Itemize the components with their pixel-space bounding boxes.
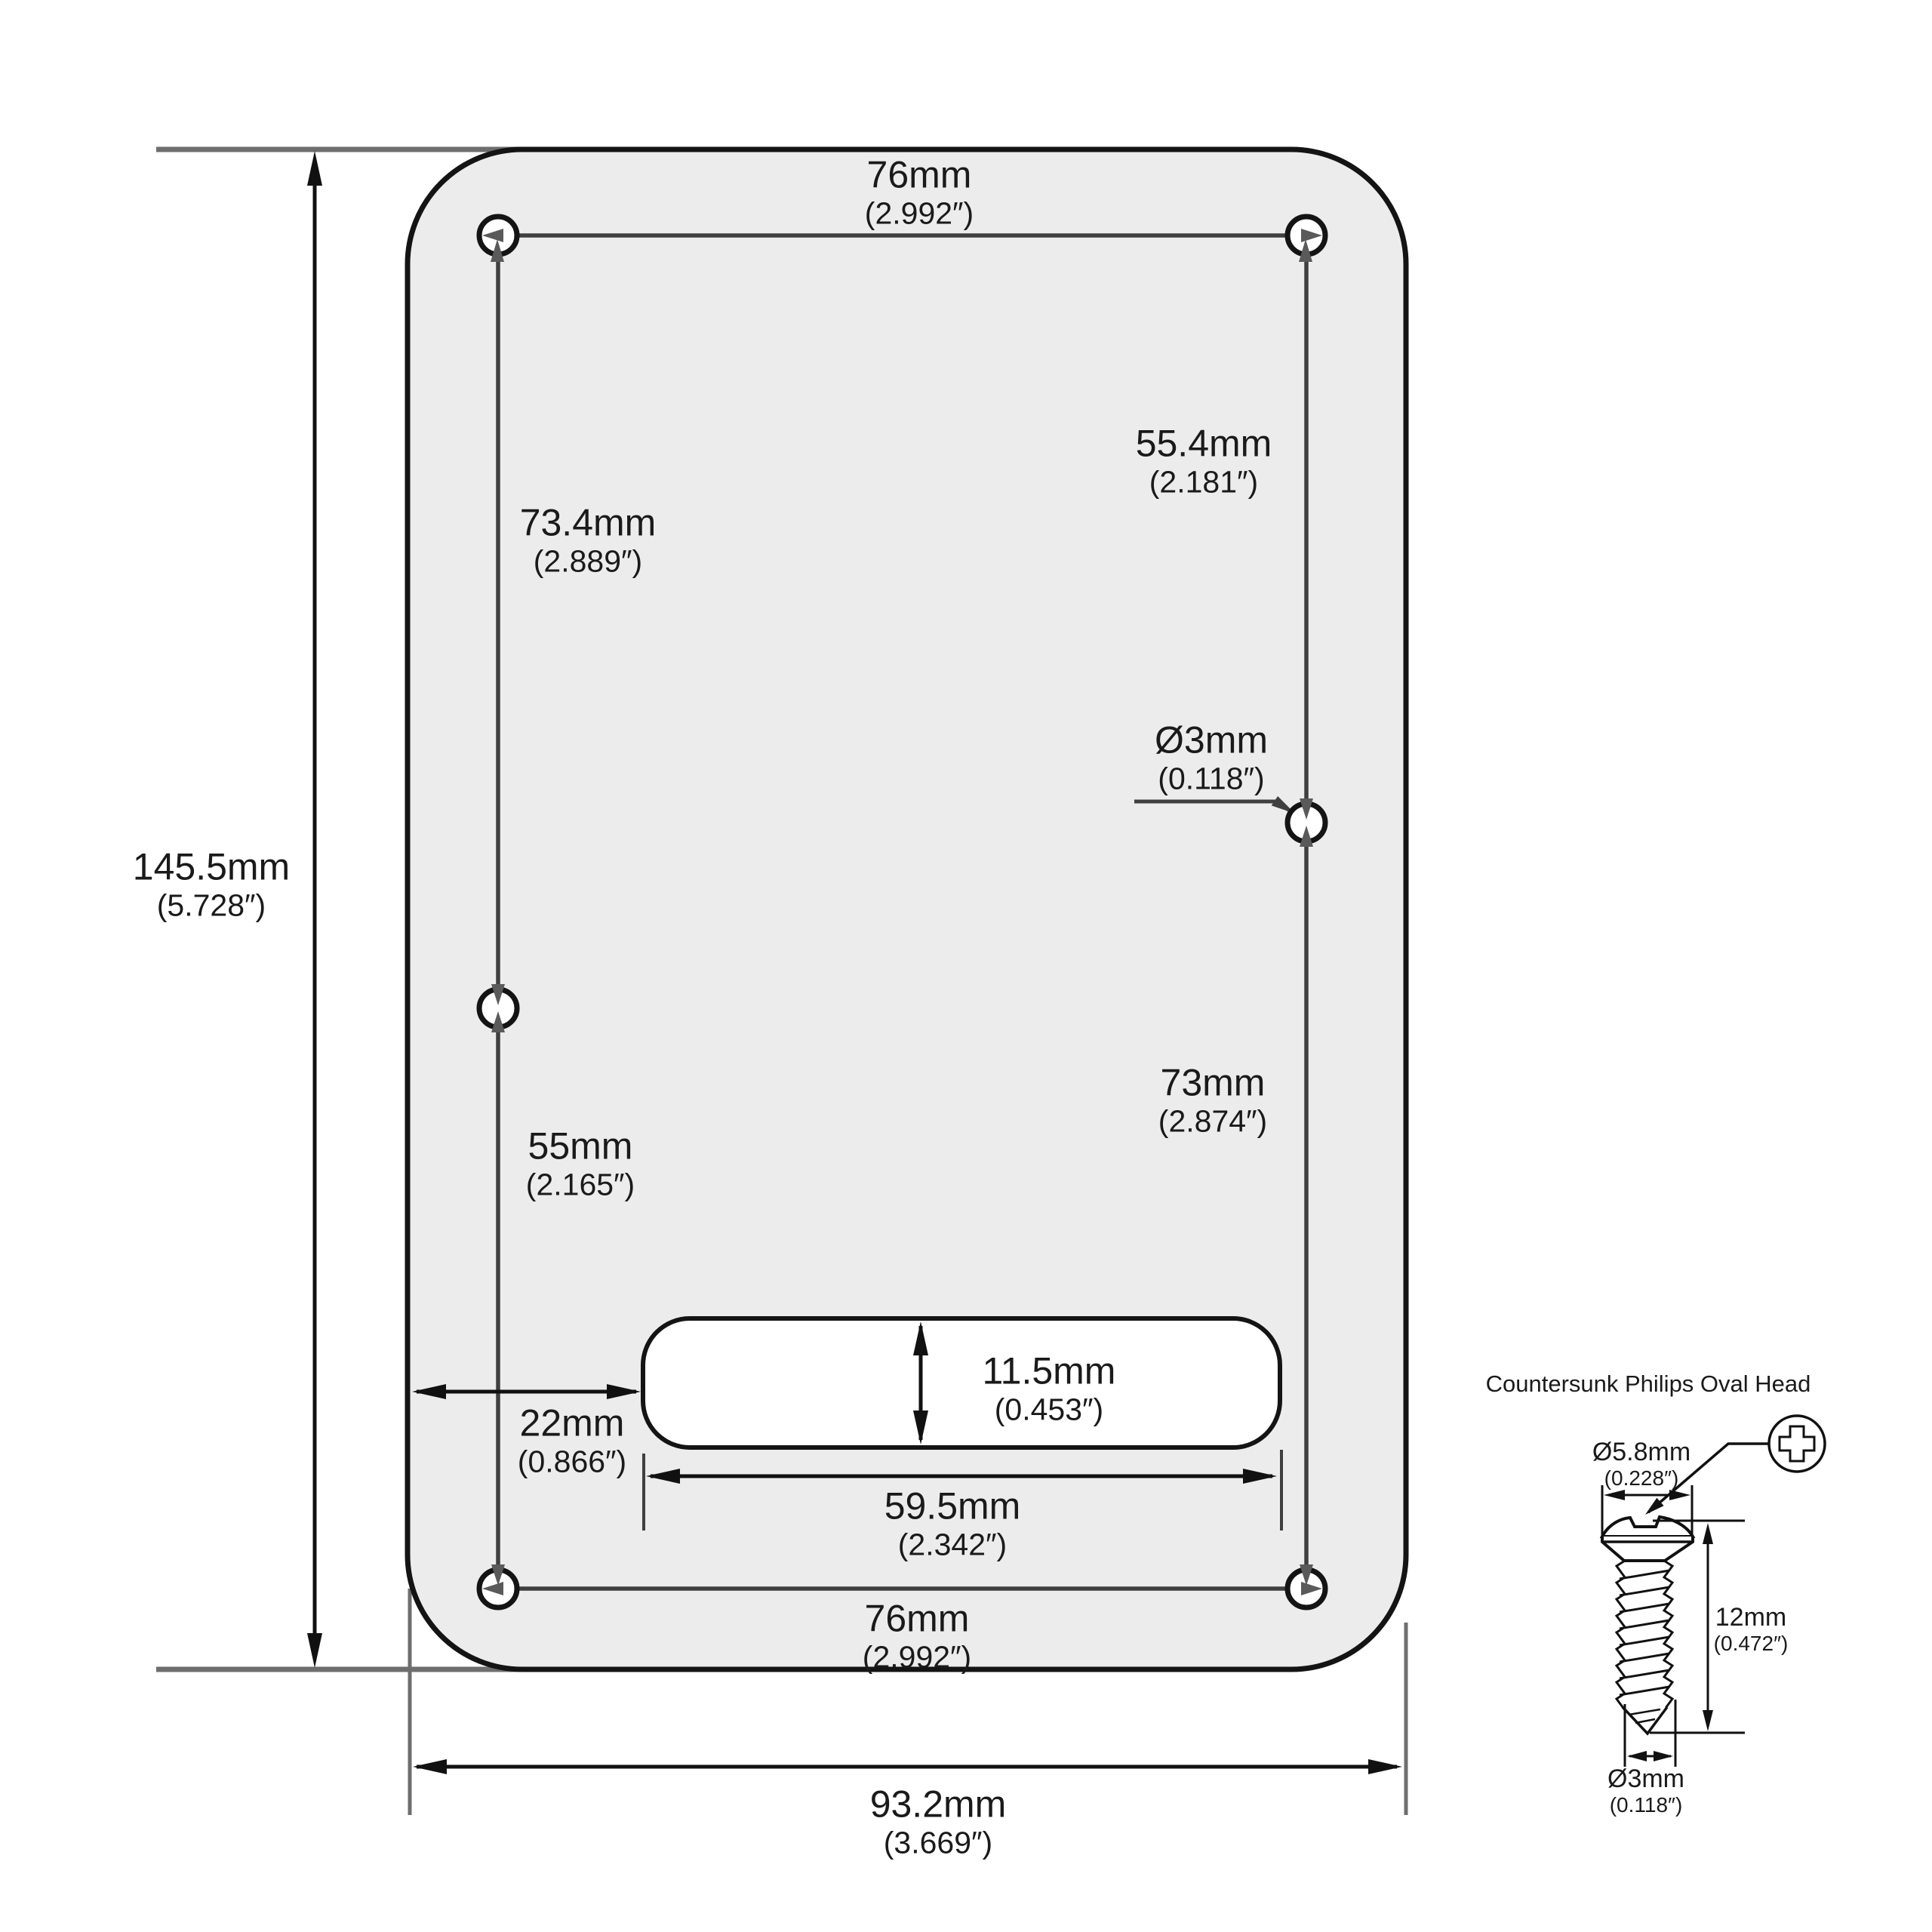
arrow-left-icon xyxy=(1627,1751,1647,1761)
arrow-down-icon xyxy=(1703,1710,1713,1731)
screw-head-countersink xyxy=(1602,1537,1693,1561)
dim-value-mm: 93.2mm xyxy=(870,1785,1007,1824)
dim-value-mm: 12mm xyxy=(1714,1604,1789,1631)
dim-label-lower-left-spacing: 55mm (2.165″) xyxy=(526,1127,635,1201)
arrow-up-icon xyxy=(1703,1523,1713,1544)
dim-value-mm: 22mm xyxy=(518,1404,626,1443)
dim-value-in: (2.181″) xyxy=(1136,466,1272,499)
dim-label-lower-right-spacing: 73mm (2.874″) xyxy=(1158,1063,1267,1138)
screw-detail-title: Countersunk Philips Oval Head xyxy=(1486,1371,1811,1398)
dim-value-in: (0.472″) xyxy=(1714,1632,1789,1654)
dim-value-in: (3.669″) xyxy=(870,1827,1007,1860)
dim-value-mm: Ø3mm xyxy=(1155,721,1268,760)
dim-label-screw-head-diameter: Ø5.8mm (0.228″) xyxy=(1592,1439,1690,1489)
dim-value-mm: 55mm xyxy=(526,1127,635,1166)
overall-width-dimension xyxy=(413,1759,1402,1774)
dim-value-mm: Ø5.8mm xyxy=(1592,1439,1690,1466)
dim-value-mm: 76mm xyxy=(863,1599,971,1638)
screw-thread xyxy=(1617,1561,1672,1710)
dim-value-in: (2.342″) xyxy=(884,1529,1021,1561)
dim-value-in: (2.992″) xyxy=(865,198,974,230)
dim-label-slot-width: 59.5mm (2.342″) xyxy=(884,1487,1021,1561)
dim-label-edge-to-slot: 22mm (0.866″) xyxy=(518,1404,626,1478)
pickup-slot xyxy=(643,1318,1280,1447)
dim-value-in: (2.992″) xyxy=(863,1641,971,1674)
dim-value-in: (5.728″) xyxy=(133,890,290,922)
dim-label-overall-height: 145.5mm (5.728″) xyxy=(133,848,290,922)
dim-value-mm: 59.5mm xyxy=(884,1487,1021,1526)
dim-value-mm: 73.4mm xyxy=(520,503,657,543)
dim-label-upper-right-spacing: 55.4mm (2.181″) xyxy=(1136,424,1272,499)
dim-value-mm: 55.4mm xyxy=(1136,424,1272,463)
dim-label-screw-thread-diameter: Ø3mm (0.118″) xyxy=(1607,1766,1684,1816)
arrow-right-icon xyxy=(1654,1751,1673,1761)
dim-value-in: (0.118″) xyxy=(1607,1794,1684,1816)
dim-label-overall-width: 93.2mm (3.669″) xyxy=(870,1785,1007,1860)
dim-value-mm: 145.5mm xyxy=(133,848,290,887)
dim-value-in: (0.453″) xyxy=(983,1394,1116,1426)
dim-value-in: (0.118″) xyxy=(1155,763,1268,795)
dim-value-mm: Ø3mm xyxy=(1607,1766,1684,1792)
dim-label-slot-height: 11.5mm (0.453″) xyxy=(983,1352,1116,1426)
dim-value-in: (2.874″) xyxy=(1158,1106,1267,1138)
dim-label-screw-length: 12mm (0.472″) xyxy=(1714,1604,1789,1654)
dim-label-top-width: 76mm (2.992″) xyxy=(865,155,974,230)
dim-value-mm: 73mm xyxy=(1158,1063,1267,1103)
arrow-down-icon xyxy=(307,1633,322,1668)
dim-label-upper-left-spacing: 73.4mm (2.889″) xyxy=(520,503,657,578)
dim-value-in: (2.889″) xyxy=(520,546,657,578)
arrow-left-icon xyxy=(1604,1490,1625,1500)
technical-drawing-page: 76mm (2.992″) 73.4mm (2.889″) 55.4mm (2.… xyxy=(0,0,1932,1932)
arrow-up-icon xyxy=(307,151,322,186)
dim-value-mm: 76mm xyxy=(865,155,974,195)
dim-value-in: (0.866″) xyxy=(518,1446,626,1478)
dim-value-mm: 11.5mm xyxy=(983,1352,1116,1391)
arrow-right-icon xyxy=(1368,1759,1402,1774)
dim-value-in: (2.165″) xyxy=(526,1169,635,1201)
overall-height-dimension xyxy=(307,151,322,1668)
screw-tip xyxy=(1623,1707,1667,1734)
dim-label-bottom-width: 76mm (2.992″) xyxy=(863,1599,971,1674)
arrow-left-icon xyxy=(413,1759,447,1774)
dim-value-in: (0.228″) xyxy=(1592,1467,1690,1489)
dim-label-hole-diameter: Ø3mm (0.118″) xyxy=(1155,721,1268,795)
